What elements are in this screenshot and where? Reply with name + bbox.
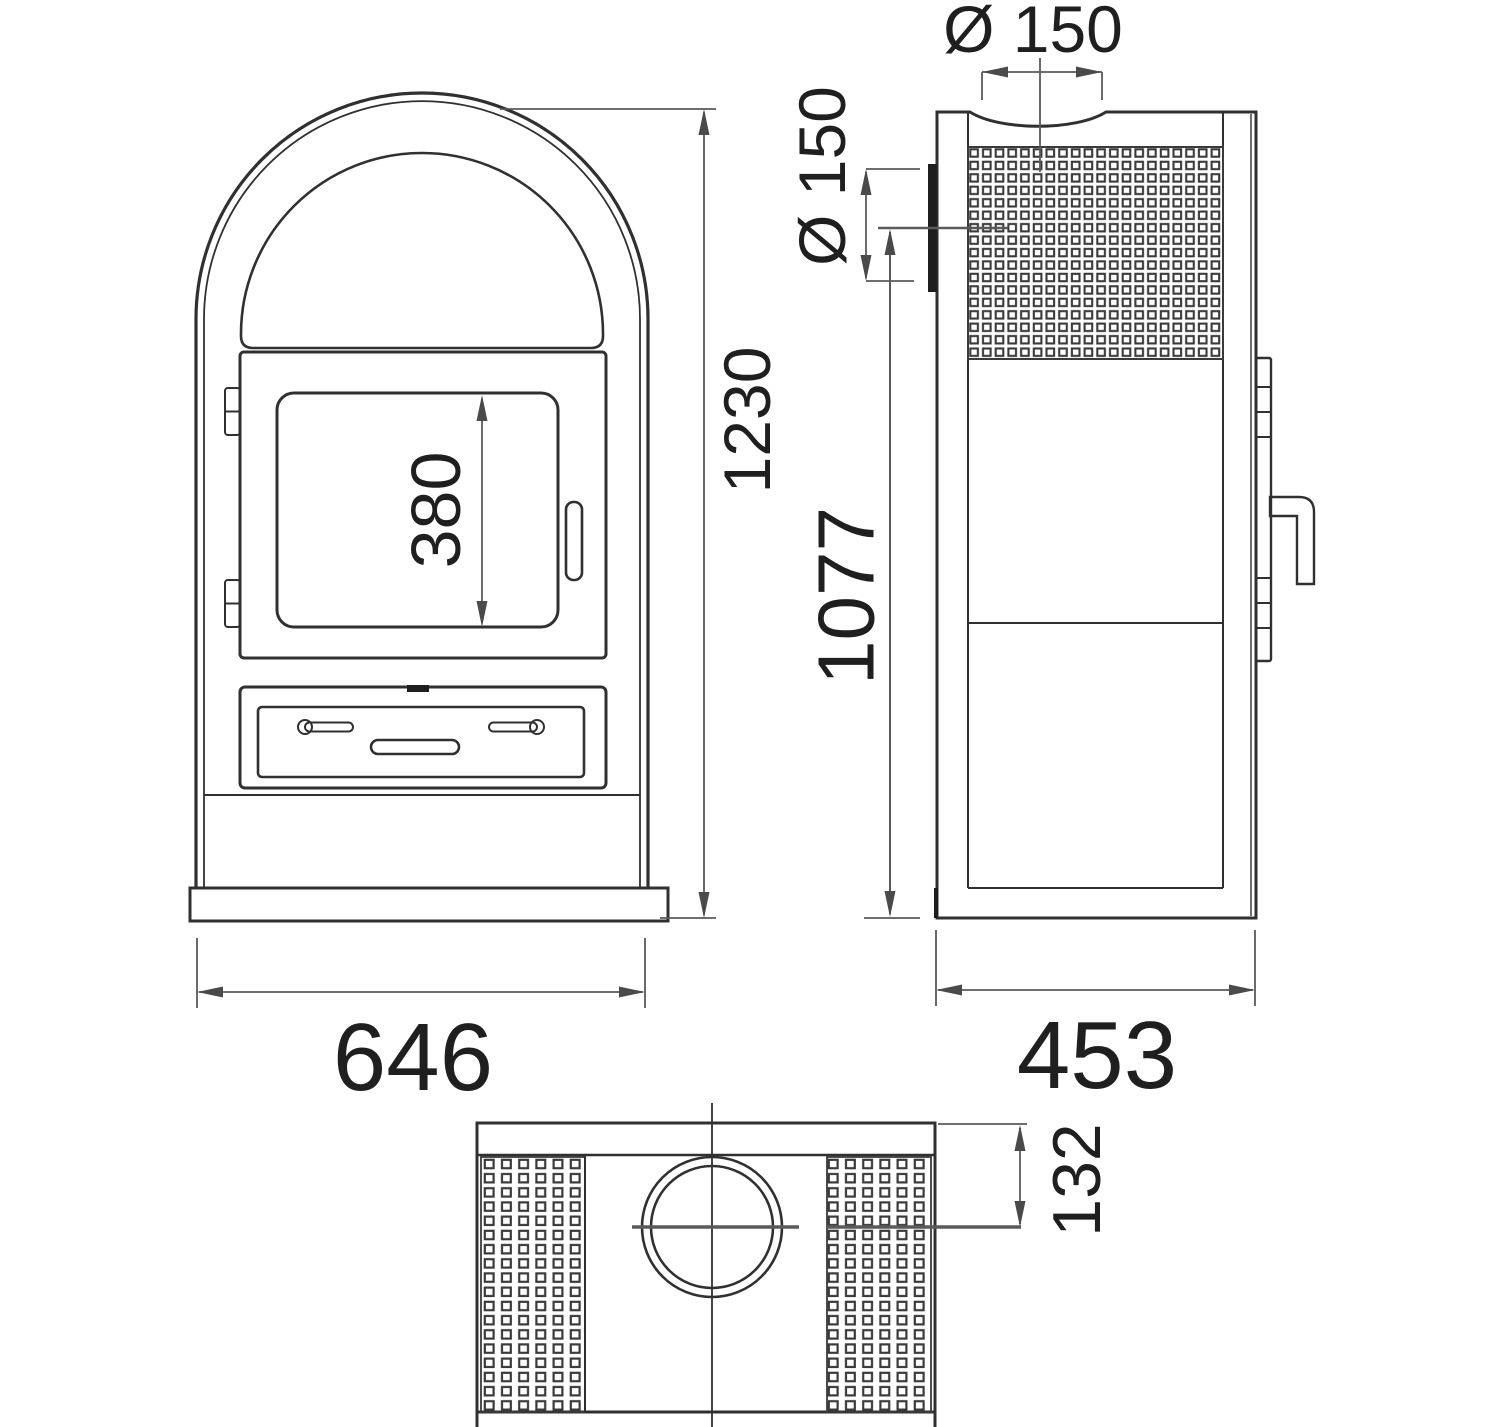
dimension-glass-height: 380: [397, 395, 488, 627]
side-perforated-panel: [968, 147, 1223, 359]
drawer-pull-slot: [371, 740, 459, 754]
overall-height-label: 1230: [710, 347, 784, 494]
flue-offset-label: 132: [1039, 1123, 1115, 1236]
top-perforated-panel-left: [481, 1157, 585, 1412]
arrow-up-icon: [1015, 1125, 1026, 1151]
drawer-face: [258, 707, 584, 777]
drawer-latch-mark: [407, 685, 429, 692]
arrow-left-icon: [982, 67, 1008, 78]
dimension-flue-offset: 132: [938, 1123, 1115, 1236]
door-hinge-top: [225, 388, 240, 435]
dimension-overall-width: 646: [197, 938, 645, 1111]
arrow-up-icon: [699, 109, 710, 135]
overall-width-label: 646: [333, 1004, 493, 1111]
air-slider-right: [489, 720, 544, 734]
front-arched-window: [241, 153, 603, 348]
arrow-down-icon: [885, 891, 896, 917]
front-base-plinth: [190, 888, 668, 921]
arrow-up-icon: [861, 169, 872, 195]
top-perforated-panel-right: [827, 1157, 931, 1412]
side-door-edge: [1256, 358, 1271, 661]
top-view: [477, 1103, 1021, 1427]
rear-flue-diameter-label: Ø 150: [785, 86, 859, 266]
side-rear-foot: [934, 888, 938, 918]
ash-drawer: [240, 685, 606, 788]
front-view: 380: [190, 93, 668, 921]
dimension-overall-height: 1230: [500, 109, 784, 918]
arrow-right-icon: [1076, 67, 1102, 78]
arrow-left-icon: [197, 987, 223, 998]
glass-height-label: 380: [397, 452, 475, 569]
side-view: [928, 112, 1314, 918]
dimension-rear-flue-height: 1077: [802, 229, 921, 918]
arrow-down-icon: [477, 601, 488, 627]
top-flue-diameter-label: Ø 150: [943, 0, 1123, 66]
arrow-down-icon: [1015, 1201, 1026, 1227]
air-slider-left: [298, 720, 353, 734]
door-handle-front: [566, 502, 582, 580]
stove-technical-drawing: 380 646: [0, 0, 1500, 1427]
arrow-right-icon: [619, 987, 645, 998]
arrow-up-icon: [885, 229, 896, 255]
door-hinge-bottom: [225, 580, 240, 627]
arrow-down-icon: [699, 892, 710, 918]
arrow-left-icon: [936, 985, 962, 996]
overall-depth-label: 453: [1017, 1002, 1177, 1109]
arrow-up-icon: [477, 395, 488, 421]
arrow-down-icon: [861, 255, 872, 281]
door-handle-side: [1270, 497, 1314, 584]
arrow-right-icon: [1229, 985, 1255, 996]
drawing-canvas: 380 646: [0, 0, 1500, 1427]
drawer-frame: [240, 687, 606, 788]
dimension-overall-depth: 453: [936, 930, 1255, 1109]
rear-flue-height-label: 1077: [802, 507, 891, 685]
